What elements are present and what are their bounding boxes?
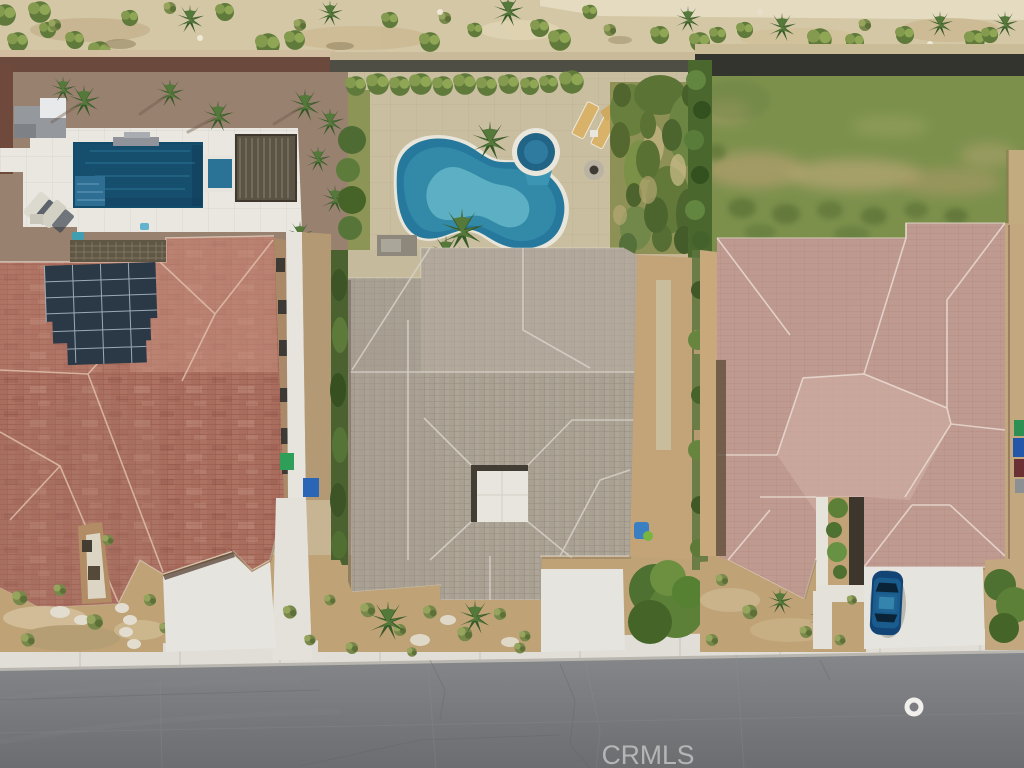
svg-text:CRMLS: CRMLS bbox=[602, 740, 695, 768]
